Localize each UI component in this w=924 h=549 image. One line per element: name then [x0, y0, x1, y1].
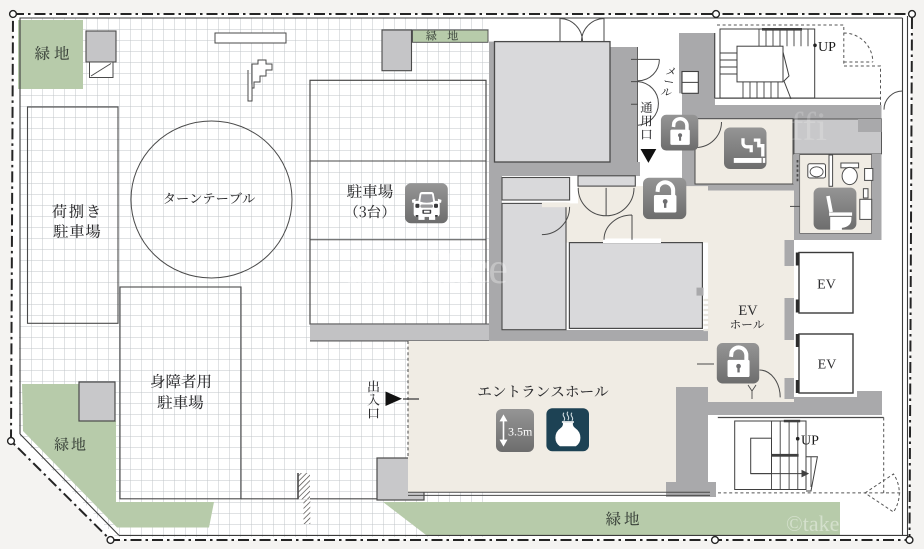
svg-text:©take: ©take	[786, 511, 839, 536]
svg-text:EV: EV	[818, 358, 837, 373]
svg-text:akeoffice: akeoffice	[345, 244, 508, 293]
svg-text:EV: EV	[817, 278, 836, 293]
svg-text:ffi: ffi	[790, 104, 827, 149]
svg-text:UP: UP	[801, 434, 819, 449]
svg-text:UP: UP	[818, 40, 836, 55]
svg-text:3.5m: 3.5m	[508, 425, 533, 439]
svg-text:EV: EV	[738, 303, 758, 319]
